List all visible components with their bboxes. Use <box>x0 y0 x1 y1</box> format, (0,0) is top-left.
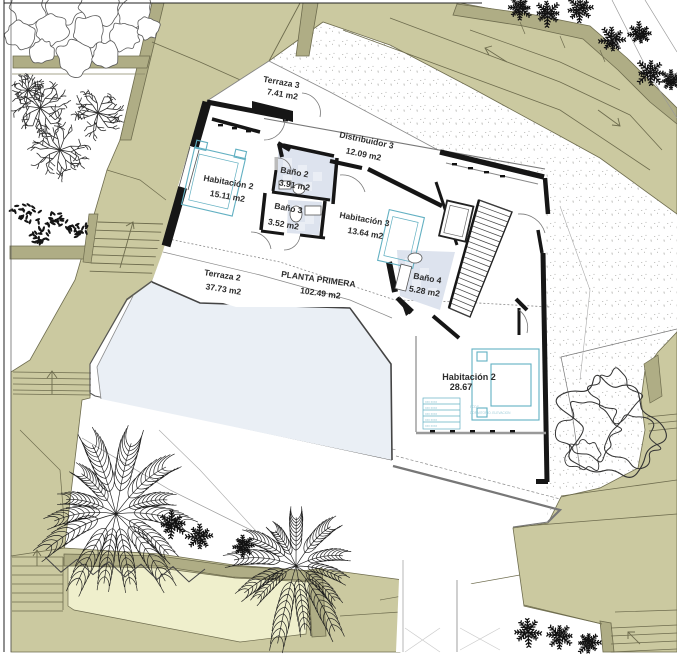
svg-text:28.67: 28.67 <box>450 382 473 392</box>
svg-text:BCDS: BCDS <box>470 405 479 409</box>
svg-text:xxx xxxx: xxx xxxx <box>425 418 437 422</box>
svg-text:xxx xxxx: xxx xxxx <box>425 406 437 410</box>
svg-text:Habitación 2: Habitación 2 <box>442 372 496 382</box>
svg-text:DORMITORIO. ELEVACION: DORMITORIO. ELEVACION <box>470 411 511 415</box>
svg-text:xxx xxxx: xxx xxxx <box>425 424 437 428</box>
svg-text:xxx xxxx: xxx xxxx <box>425 412 437 416</box>
svg-text:xxx xxxx: xxx xxxx <box>425 400 437 404</box>
